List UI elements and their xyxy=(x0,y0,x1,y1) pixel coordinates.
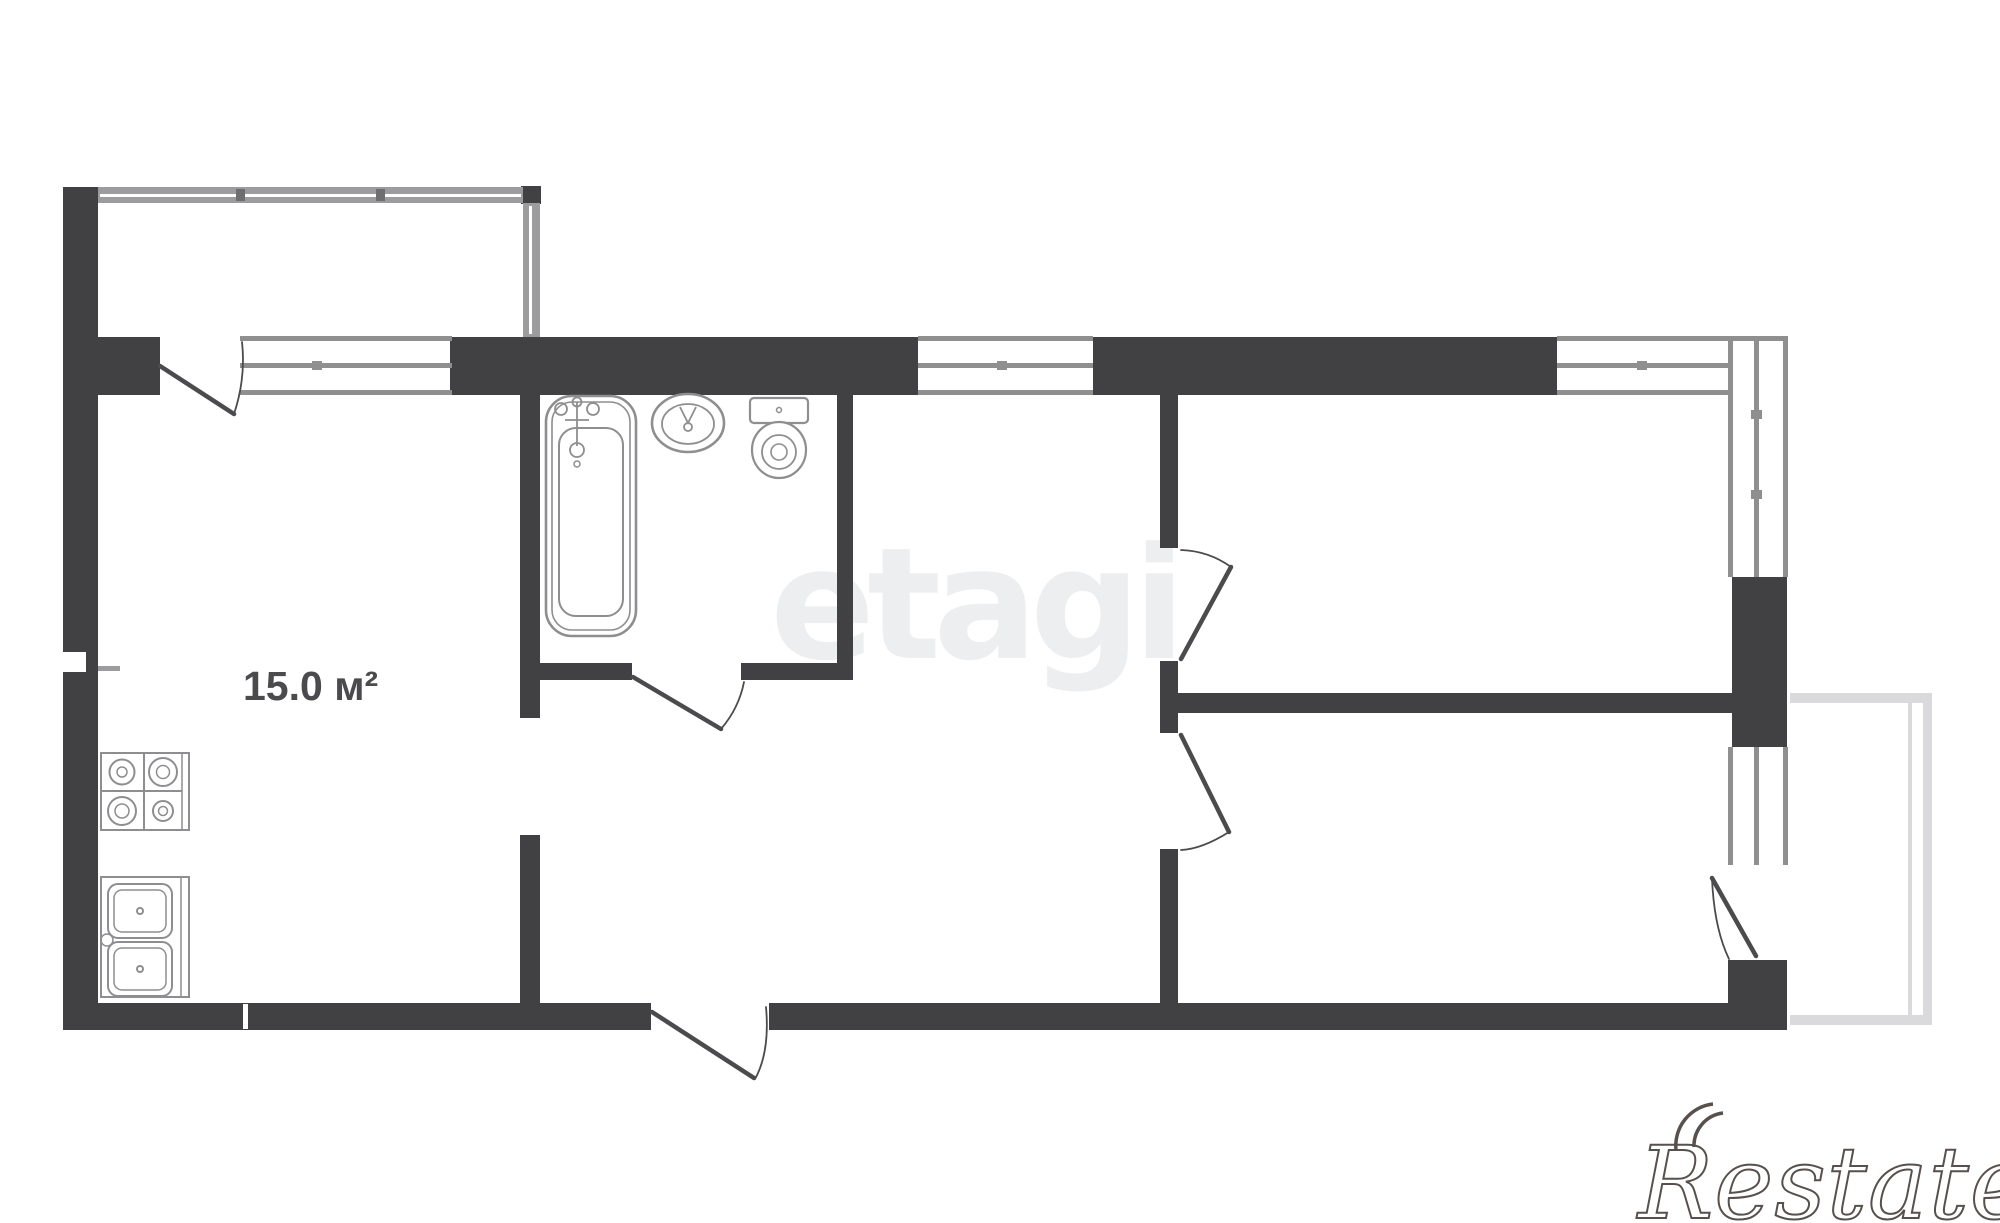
tick-left-wall xyxy=(98,666,120,671)
watermark-restate-text: Restate xyxy=(1636,1125,2000,1223)
window-right-upper-inner-line xyxy=(1728,341,1733,577)
window-right-upper-center-line xyxy=(1754,341,1759,577)
window-kitchen-center-line xyxy=(240,363,452,368)
washbasin-icon xyxy=(652,394,724,452)
window-kitchen-top-line xyxy=(240,336,452,341)
balcony-right-outer-edge xyxy=(1923,693,1932,1025)
window-middle-top-line xyxy=(918,336,1093,341)
window-middle-bottom-line xyxy=(918,390,1093,395)
glazing-gap-top xyxy=(100,194,521,197)
wall-right-outer-mid xyxy=(1732,577,1787,747)
window-topright-bottom-line xyxy=(1557,390,1728,395)
stove-icon xyxy=(101,753,189,830)
wall-bathroom-bottom-left xyxy=(540,663,632,680)
wall-bathroom-right xyxy=(837,387,853,680)
kitchen-area-label: 15.0 м² xyxy=(243,663,378,709)
wall-kitchen-divider-upper xyxy=(520,395,540,718)
window-right-lower-outer-line xyxy=(1783,747,1788,865)
wall-left-outer xyxy=(63,187,98,1030)
wall-kitchen-top-left xyxy=(63,337,160,395)
wall-middle-right-upper xyxy=(1160,395,1178,548)
bathtub-icon xyxy=(546,396,636,636)
wall-top-main xyxy=(450,337,918,395)
wall-kitchen-divider-lower xyxy=(520,835,540,1005)
notch-left-wall xyxy=(63,652,86,672)
wall-top-right xyxy=(1093,337,1557,395)
window-topright-tick xyxy=(1637,361,1647,370)
balcony-right-bottom-edge xyxy=(1790,1015,1932,1025)
wall-bathroom-bottom-right xyxy=(741,663,853,680)
wall-middle-right-lower xyxy=(1160,849,1178,1005)
floor-plan-svg: etagi xyxy=(0,0,2000,1223)
window-right-upper-tick-2 xyxy=(1751,490,1762,499)
balcony-right-inner-edge xyxy=(1908,701,1912,1019)
wall-middle-right-mid xyxy=(1160,661,1178,733)
toilet-tank xyxy=(750,398,808,423)
window-right-lower-inner-line xyxy=(1728,747,1733,865)
window-topright-top-line xyxy=(1557,336,1788,341)
wall-right-rooms-divider xyxy=(1178,693,1732,713)
notch-bottom-wall xyxy=(243,1004,248,1029)
wall-bottom-left xyxy=(63,1003,651,1030)
floor-plan-canvas: etagi xyxy=(0,0,2000,1223)
wall-joint-ticks xyxy=(98,666,120,671)
wall-bottom-right xyxy=(769,1003,1787,1030)
window-right-upper-tick-1 xyxy=(1751,410,1762,419)
toilet-icon xyxy=(750,398,808,478)
window-right-upper-outer-line xyxy=(1783,336,1788,577)
glazing-tick-1 xyxy=(236,189,245,201)
window-kitchen-bottom-line xyxy=(240,390,452,395)
double-sink-icon xyxy=(101,877,189,997)
window-middle-tick xyxy=(997,361,1007,370)
window-kitchen-tick xyxy=(312,361,322,370)
wall-balcony-corner-post xyxy=(521,186,541,204)
glazing-tick-2 xyxy=(376,189,385,201)
glazing-gap-right xyxy=(529,206,532,334)
window-right-lower-center-line xyxy=(1754,747,1759,865)
